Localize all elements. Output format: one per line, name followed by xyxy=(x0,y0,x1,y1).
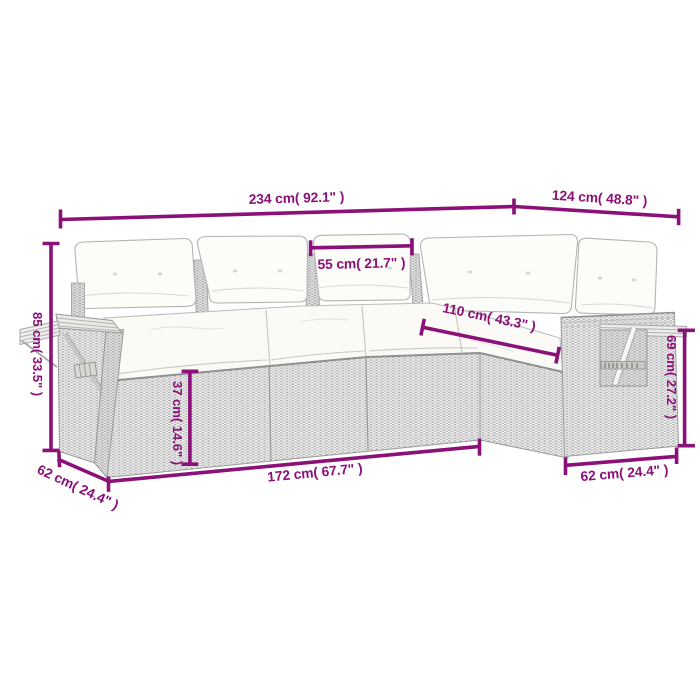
svg-text:37 cm( 14.6" ): 37 cm( 14.6" ) xyxy=(170,381,185,465)
svg-text:234 cm( 92.1" ): 234 cm( 92.1" ) xyxy=(249,189,345,207)
svg-text:85 cm( 33.5" ): 85 cm( 33.5" ) xyxy=(30,312,45,396)
svg-text:69 cm( 27.2" ): 69 cm( 27.2" ) xyxy=(664,335,679,419)
svg-text:55 cm( 21.7" ): 55 cm( 21.7" ) xyxy=(317,255,405,272)
